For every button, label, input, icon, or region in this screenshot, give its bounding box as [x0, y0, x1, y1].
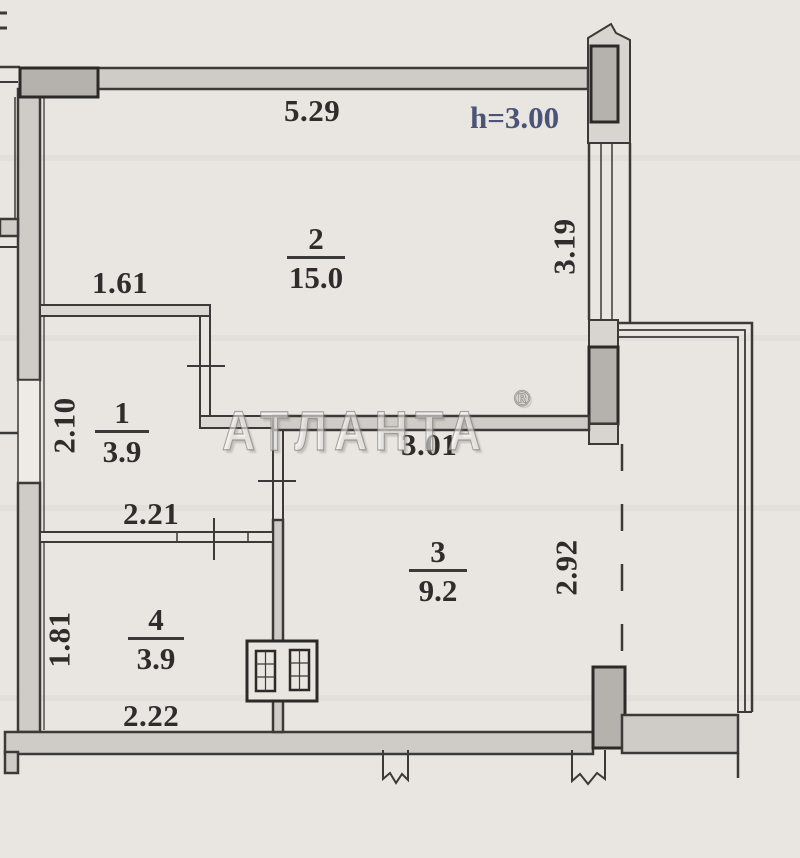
dimension-room2-width: 5.29	[284, 95, 340, 126]
dimension-room1-width: 1.61	[92, 267, 148, 298]
dimension-room4-width: 2.22	[123, 700, 179, 731]
dimension-room3-depth: 2.92	[531, 532, 601, 602]
watermark: АТЛАНТА	[222, 398, 488, 463]
dimension-room2-depth: 3.19	[529, 211, 599, 281]
balcony	[618, 323, 752, 712]
room-label-1: 1 3.9	[95, 396, 149, 469]
room-number: 1	[95, 396, 149, 433]
room-number: 2	[287, 222, 345, 259]
dimension-room1-depth: 2.10	[29, 390, 99, 460]
room-number: 3	[409, 535, 467, 572]
registered-trademark-icon: ®	[514, 386, 530, 412]
floor-plan: 5.29 h=3.00 2 15.0 1.61 3.19 1 3.9 2.10 …	[0, 0, 800, 858]
room-area: 9.2	[419, 572, 458, 607]
dimension-hall-width: 2.21	[123, 498, 179, 529]
vent-shaft	[247, 641, 317, 701]
room-area: 3.9	[103, 433, 142, 468]
room-number: 4	[128, 603, 184, 640]
ceiling-height-note: h=3.00	[470, 102, 559, 133]
pillar	[593, 667, 625, 748]
room-label-2: 2 15.0	[287, 222, 345, 295]
room-area: 3.9	[137, 640, 176, 675]
corner-column	[20, 68, 98, 97]
room-label-4: 4 3.9	[128, 603, 184, 676]
room-area: 15.0	[289, 259, 343, 294]
dimension-room4-depth: 1.81	[24, 604, 94, 674]
room-label-3: 3 9.2	[409, 535, 467, 608]
